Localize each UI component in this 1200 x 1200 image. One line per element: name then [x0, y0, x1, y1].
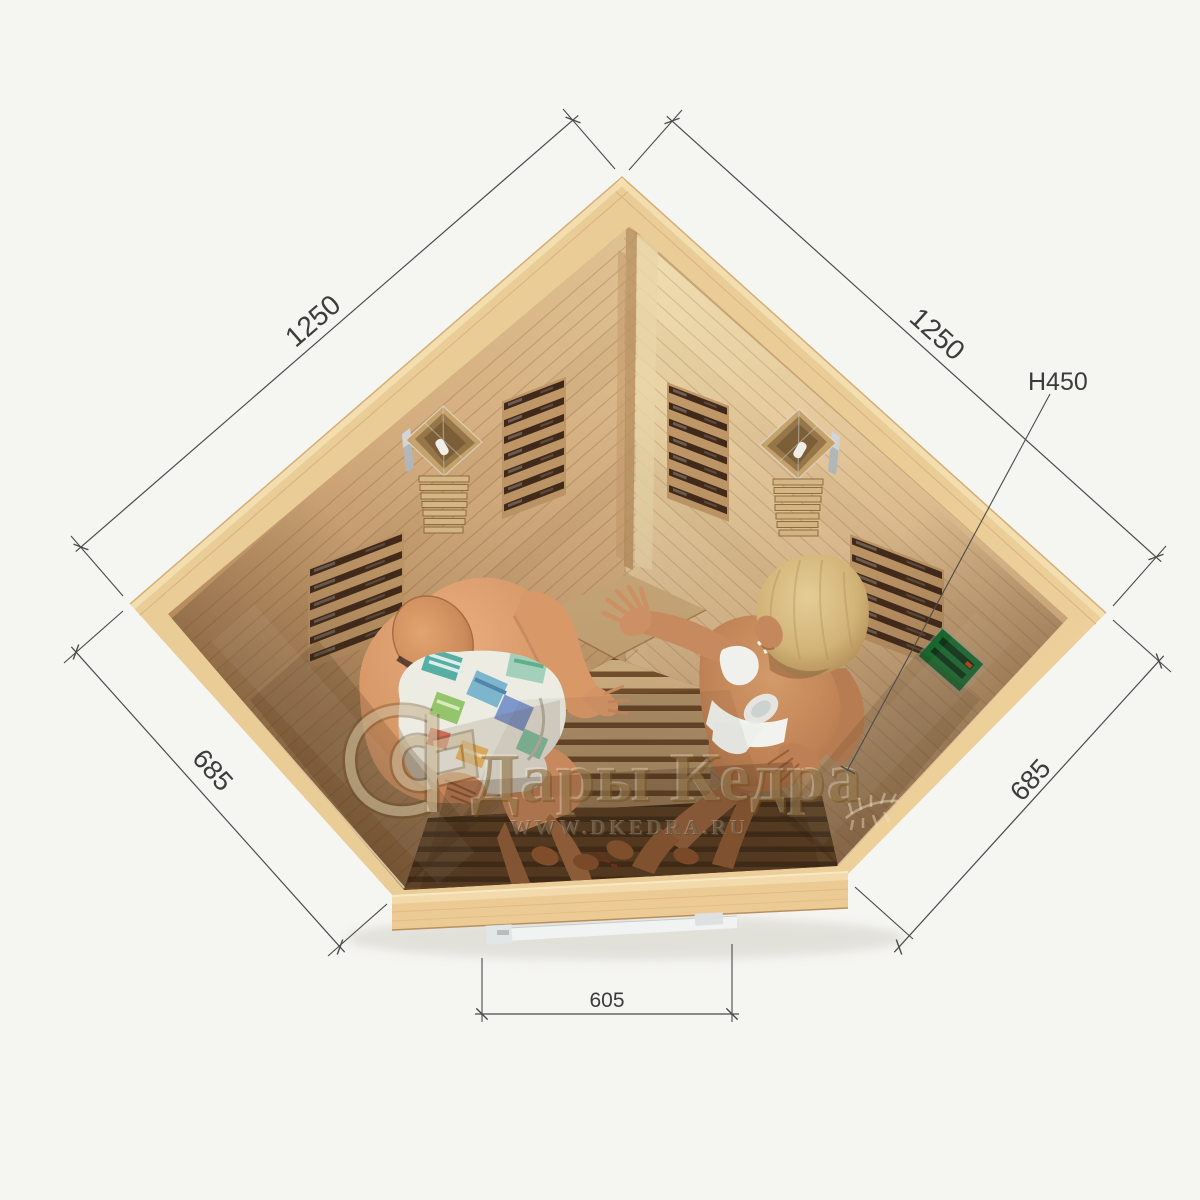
svg-text:H450: H450: [1028, 368, 1088, 396]
svg-text:WWW.DKEDRA.RU: WWW.DKEDRA.RU: [511, 816, 749, 840]
svg-text:605: 605: [589, 989, 624, 1012]
svg-text:Дары Кедра: Дары Кедра: [472, 741, 864, 818]
